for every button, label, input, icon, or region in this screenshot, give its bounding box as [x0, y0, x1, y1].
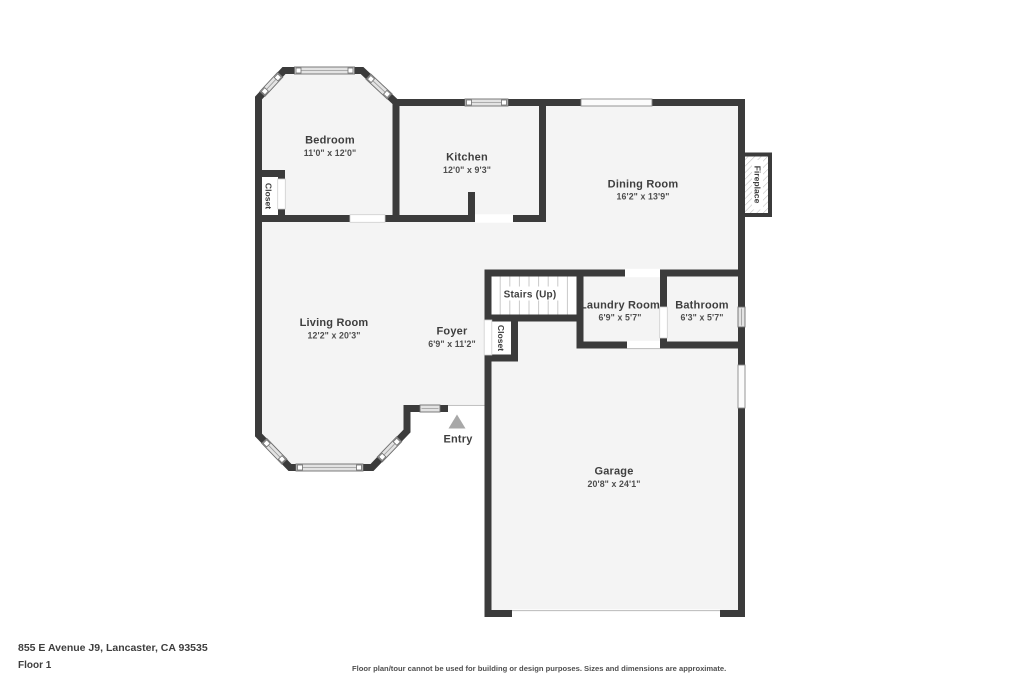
fireplace-label: Fireplace: [753, 166, 763, 204]
property-address: 855 E Avenue J9, Lancaster, CA 93535: [18, 642, 208, 654]
bedroom-dims: 11'0" x 12'0": [304, 148, 356, 158]
bathroom-label: Bathroom: [675, 300, 729, 312]
fireplace: Fireplace: [743, 155, 770, 216]
kitchen-window: [465, 99, 508, 106]
svg-text:Stairs (Up): Stairs (Up): [504, 290, 557, 301]
stairs-label: Stairs (Up): [501, 287, 559, 301]
kitchen-label: Kitchen: [446, 152, 488, 164]
living-room-label: Living Room: [300, 317, 369, 329]
laundry-room-label: Laundry Room: [580, 300, 660, 312]
bathroom-dims: 6'3" x 5'7": [681, 313, 724, 323]
entry-label: Entry: [443, 434, 473, 446]
laundry-room-dims: 6'9" x 5'7": [599, 313, 642, 323]
kitchen-dims: 12'0" x 9'3": [443, 165, 491, 175]
dining-room-dims: 16'2" x 13'9": [617, 192, 670, 202]
foyer-label: Foyer: [437, 326, 468, 338]
garage-dims: 20'8" x 24'1": [588, 479, 641, 489]
entry-marker: Entry: [443, 415, 473, 446]
dining-room-label: Dining Room: [608, 179, 679, 191]
bedroom-label: Bedroom: [305, 135, 355, 147]
garage-label: Garage: [594, 466, 633, 478]
floor-label: Floor 1: [18, 660, 51, 671]
right-wall-window: [738, 365, 745, 408]
entry-arrow-icon: [449, 415, 466, 429]
living-room-dims: 12'2" x 20'3": [308, 331, 361, 341]
disclaimer-text: Floor plan/tour cannot be used for build…: [352, 664, 726, 673]
floor-plan-page: Fireplace Stairs (Up) Entry Bedroom 11'0…: [0, 0, 1024, 683]
bathroom-window: [738, 307, 745, 327]
foyer-closet-label: Closet: [496, 325, 506, 351]
foyer-front-window: [420, 405, 440, 412]
floor-plan-drawing: Fireplace Stairs (Up) Entry Bedroom 11'0…: [0, 0, 1024, 683]
bedroom-closet-label: Closet: [264, 183, 274, 209]
living-room-bay-window: [296, 464, 363, 471]
foyer-dims: 6'9" x 11'2": [428, 339, 475, 349]
dining-room-window: [581, 99, 652, 106]
bedroom-top-window: [295, 67, 355, 74]
